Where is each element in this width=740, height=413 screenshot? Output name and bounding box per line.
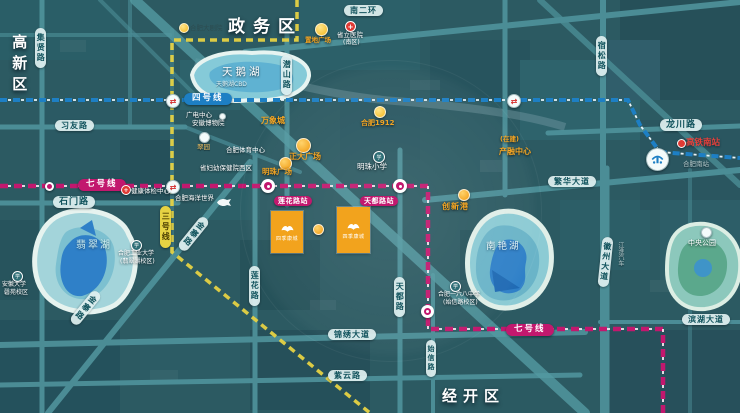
poi-hfut: 合肥工业大学 [118,251,154,258]
lake-label-central-park: 中央公园 [688,239,716,247]
district-zhengwu: 政务区 [228,18,303,38]
poi-cuiyuan: 翠园 [197,144,210,151]
station-ring-tiandu [393,179,407,193]
train-station-icon [646,148,669,171]
park-icon [199,132,210,143]
poi-mingzhu-school: 明珠小学 [357,163,387,172]
developer-logo-icon [280,223,295,233]
poi-tiyu: 合肥体育中心 [226,147,265,154]
metro-line7-pill-2: 七号线 [506,324,554,336]
road-ziyun: 紫云路 [328,370,367,381]
poi-anda-campus: 磬苑校区 [4,290,28,297]
poi-chanrong: 产融中心 [499,147,531,156]
road-shimen: 石门路 [53,196,95,208]
poi-icon [313,224,324,235]
road-xiyou: 习友路 [55,120,94,131]
poi-168-campus: (始信路校区) [443,300,478,307]
poi-dajuyuan: 合肥大剧院 [190,25,223,32]
lake-label-swan: 天鹅湖 [222,66,263,78]
station-dot [45,182,54,191]
poi-wanxiang: 万象城 [261,116,285,125]
poi-shengli-sub: (南区) [343,40,360,47]
city-map: 高新区 政务区 经开区 天鹅湖 天鹅湖CBD 翡翠湖 南艳湖 中央公园 集贤路 … [0,0,740,413]
road-fanhua: 繁华大道 [548,176,596,187]
transfer-station-icon: ⇄ [166,94,180,108]
poi-zhidi: 置地广场 [305,37,331,44]
road-susong: 宿松路 [596,36,607,76]
poi-jac: 江淮汽车 [616,242,623,266]
metro-line3-pill: 三号线 [160,206,171,248]
road-jixian: 集贤路 [35,28,46,68]
mall-icon [374,106,386,118]
poi-tijian: 健康体检中心 [131,188,170,195]
lake-sublabel-swan-cbd: 天鹅湖CBD [216,82,247,89]
poi-ocean-world: 合肥海洋世界 [175,195,214,202]
poi-168-school: 合肥一六八中学 [438,292,480,299]
lake-label-feicui: 翡翠湖 [76,240,112,252]
tech-park-icon [458,189,470,201]
parcel-label: 四季康城 [276,235,298,242]
road-longchuan: 龙川路 [660,119,702,131]
poi-zhengda: 正大广场 [289,152,321,161]
theater-icon [179,23,189,33]
road-qianshan: 潜山路 [281,55,292,95]
station-pill-tiandu: 天都路站 [360,196,398,206]
hsr-marker-icon [677,139,686,148]
poi-mingzhu-plaza: 明珠广场 [262,168,292,177]
poi-hfut-campus: (翡翠湖校区) [120,259,155,266]
clinic-icon: + [121,185,131,195]
road-nanerhuan: 南二环 [344,5,383,16]
road-binhu: 滨湖大道 [682,314,730,325]
mall-icon [296,138,311,153]
metro-line7-pill: 七号线 [78,179,126,191]
hsr-station-label: 高铁南站 [686,139,720,149]
lake-label-nanyan: 南艳湖 [486,242,521,253]
park-icon [701,227,712,238]
whale-icon [216,193,232,211]
district-gaoxin: 高新区 [10,34,27,97]
road-lianhua: 莲花路 [249,266,260,306]
parcel-label: 四季康城 [342,233,364,240]
hefei-south-label: 合肥南站 [683,161,709,168]
property-parcel: 四季康城 [271,211,303,253]
poi-fuyou: 省妇幼保健院西区 [200,165,252,172]
poi-bowuyuan: 安徽博物院 [192,120,225,127]
poi-anda: 安徽大学 [2,282,26,289]
road-shixin: 始信路 [426,340,436,377]
station-ring [421,305,434,318]
poi-chanrong-status: (在建) [500,136,519,143]
property-parcel: 四季康城 [337,207,370,253]
poi-hf1912: 合肥1912 [361,119,394,127]
road-tiandu: 天都路 [394,277,405,317]
road-jinxiu: 锦绣大道 [328,329,376,340]
transfer-station-icon: ⇄ [507,94,521,108]
station-ring-lianhua [261,179,275,193]
developer-logo-icon [346,221,361,231]
district-jingkai: 经开区 [442,388,505,405]
mall-icon [315,23,328,36]
station-pill-lianhua: 莲花路站 [274,196,312,206]
metro-line4-pill: 四号线 [184,93,232,105]
poi-chuangxin: 创新港 [442,202,469,211]
